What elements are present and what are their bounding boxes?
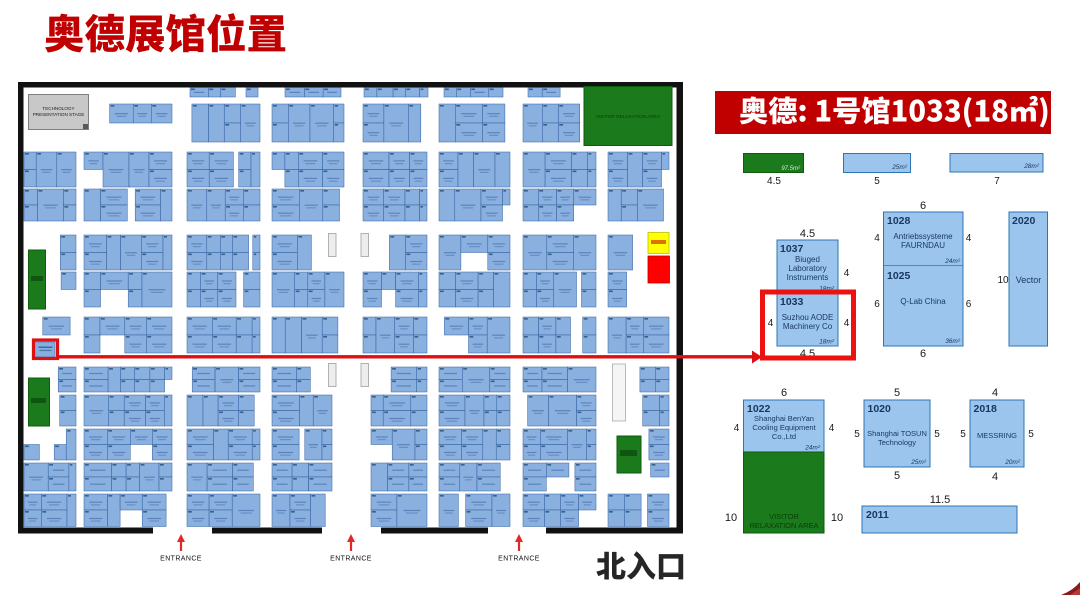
- svg-text:Antriebssysteme: Antriebssysteme: [893, 232, 953, 241]
- svg-text:10: 10: [997, 275, 1009, 286]
- svg-text:18m²: 18m²: [819, 339, 835, 346]
- svg-text:25m²: 25m²: [910, 459, 927, 466]
- svg-text:VISITOR: VISITOR: [769, 512, 799, 521]
- svg-text:5: 5: [894, 470, 900, 482]
- svg-text:20m²: 20m²: [1004, 459, 1021, 466]
- svg-text:Technology: Technology: [878, 438, 916, 447]
- svg-text:2020: 2020: [1012, 215, 1036, 227]
- svg-text:Co.,Ltd: Co.,Ltd: [772, 432, 796, 441]
- svg-text:4: 4: [874, 233, 880, 244]
- svg-text:1033: 1033: [780, 296, 804, 308]
- svg-text:ENTRANCE: ENTRANCE: [160, 556, 202, 563]
- svg-text:5: 5: [894, 387, 900, 399]
- svg-text:TECHNOLOGY: TECHNOLOGY: [42, 106, 74, 111]
- svg-text:4.5: 4.5: [767, 176, 781, 187]
- svg-text:4: 4: [768, 318, 774, 329]
- svg-text:24m²: 24m²: [944, 258, 961, 265]
- svg-text:VISITOR RELAXATION AREA: VISITOR RELAXATION AREA: [596, 114, 661, 120]
- svg-text:6: 6: [920, 200, 926, 212]
- svg-text:Suzhou AODE: Suzhou AODE: [782, 313, 834, 322]
- svg-text:10: 10: [725, 512, 737, 524]
- svg-text:ENTRANCE: ENTRANCE: [330, 556, 372, 563]
- svg-text:FAURNDAU: FAURNDAU: [901, 241, 945, 250]
- svg-text:4: 4: [992, 387, 998, 399]
- svg-text:Vector: Vector: [1016, 275, 1042, 285]
- svg-text:97.5m²: 97.5m²: [781, 166, 801, 172]
- svg-text:11.5: 11.5: [930, 494, 951, 506]
- svg-text:4: 4: [844, 318, 850, 329]
- svg-text:10: 10: [831, 512, 843, 524]
- svg-text:Machinery Co: Machinery Co: [783, 322, 833, 331]
- svg-text:2011: 2011: [866, 509, 889, 521]
- svg-text:28m²: 28m²: [1023, 163, 1040, 170]
- svg-text:6: 6: [874, 299, 880, 310]
- svg-text:Shanghai TOSUN: Shanghai TOSUN: [867, 429, 927, 438]
- svg-text:5: 5: [1028, 429, 1034, 440]
- svg-text:Laboratory: Laboratory: [788, 264, 826, 273]
- svg-text:Shanghai BenYan: Shanghai BenYan: [754, 414, 814, 423]
- svg-text:7: 7: [994, 176, 1000, 187]
- svg-text:5: 5: [874, 176, 880, 187]
- svg-text:4: 4: [992, 471, 998, 483]
- svg-text:RELAXATION AREA: RELAXATION AREA: [749, 521, 818, 530]
- svg-text:Q-Lab China: Q-Lab China: [900, 297, 946, 306]
- svg-text:24m²: 24m²: [804, 445, 821, 452]
- svg-text:5: 5: [934, 429, 940, 440]
- svg-text:25m²: 25m²: [891, 164, 908, 171]
- svg-text:5: 5: [960, 429, 966, 440]
- svg-text:4: 4: [844, 268, 850, 279]
- svg-text:4: 4: [734, 423, 740, 434]
- svg-text:4: 4: [829, 423, 835, 434]
- svg-text:1037: 1037: [780, 243, 804, 255]
- svg-text:Biuged: Biuged: [795, 255, 820, 264]
- svg-text:6: 6: [781, 387, 787, 399]
- svg-text:6: 6: [920, 348, 926, 360]
- svg-text:2018: 2018: [974, 403, 998, 415]
- svg-text:Instruments: Instruments: [787, 273, 829, 282]
- svg-text:4: 4: [966, 233, 972, 244]
- svg-text:1025: 1025: [887, 270, 911, 282]
- svg-text:5: 5: [854, 429, 860, 440]
- svg-text:Cooling Equipment: Cooling Equipment: [752, 423, 816, 432]
- svg-text:36m²: 36m²: [945, 338, 961, 345]
- svg-text:1020: 1020: [868, 403, 892, 415]
- svg-text:MESSRING: MESSRING: [977, 431, 1017, 440]
- svg-text:PRESENTATION STAGE: PRESENTATION STAGE: [33, 112, 85, 117]
- svg-text:1028: 1028: [887, 215, 911, 227]
- svg-text:6: 6: [966, 299, 972, 310]
- svg-text:4.5: 4.5: [800, 228, 815, 240]
- svg-text:ENTRANCE: ENTRANCE: [498, 556, 540, 563]
